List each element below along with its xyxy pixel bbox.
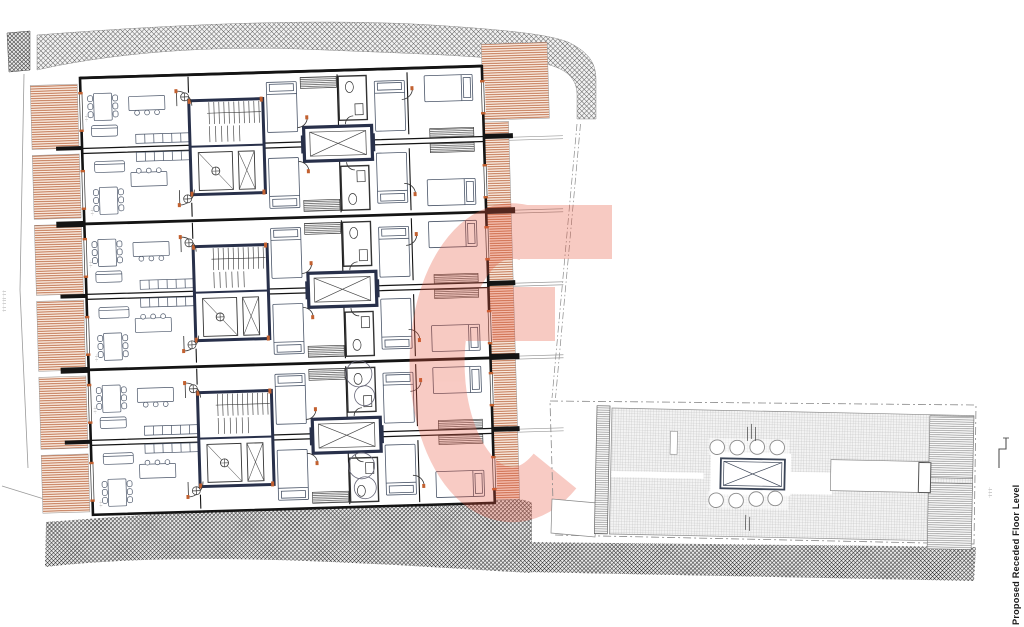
plan-title: Proposed Receded Floor Level	[1011, 485, 1021, 625]
roof-slot	[670, 431, 677, 454]
roof-slat-lower	[927, 483, 972, 550]
watermark-letter	[437, 205, 612, 495]
main-floor-plan	[29, 42, 573, 517]
rooflight-x	[720, 458, 785, 489]
corner-hatch-patch	[7, 31, 30, 72]
roof-court	[788, 472, 832, 495]
site-boundary-line-right	[552, 124, 581, 398]
floor-plan-drawing: ··|··|·· ··|··|··	[0, 0, 1024, 627]
level-marker: ··|··|··|··	[988, 438, 1009, 498]
roof-white-panel	[830, 460, 929, 493]
roof-panel-endcap	[918, 462, 931, 492]
terrace-divider-lines	[509, 136, 572, 432]
roof-plan	[594, 406, 974, 550]
left-margin-note-micro: ·|··|···|··|·|···|··|·	[2, 290, 6, 312]
roof-left-slat-strip	[594, 406, 610, 534]
site-boundary-hatch-bottom-right	[523, 542, 976, 581]
roof-slat-upper	[929, 416, 974, 479]
level-marker-note-micro: ··|··|··|··	[988, 487, 992, 498]
architectural-drawing-sheet: ··|··|·· ··|··|··	[0, 0, 1024, 627]
roof-lower-terrace-outline	[551, 499, 597, 537]
